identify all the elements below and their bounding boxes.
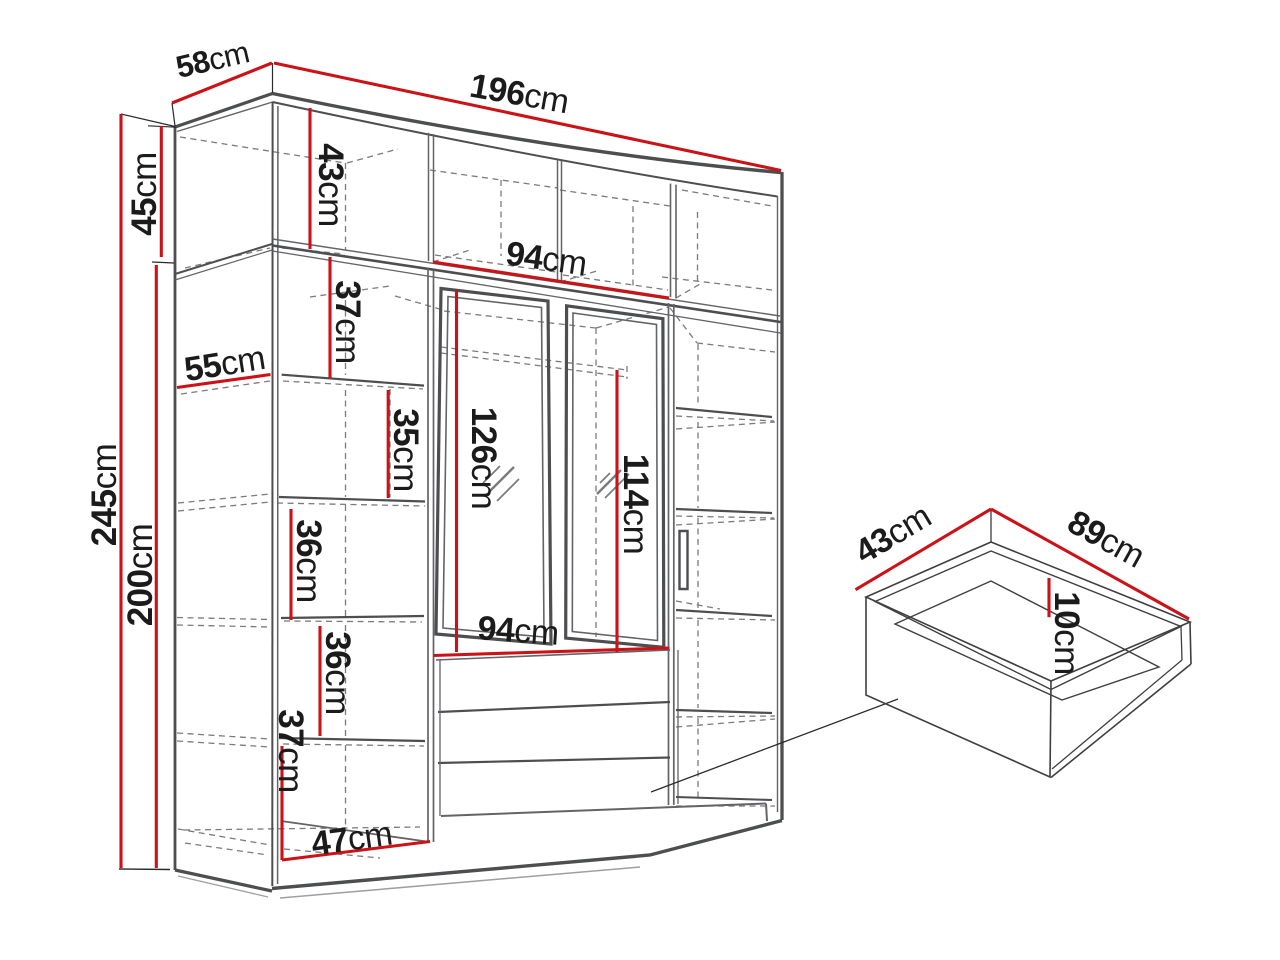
svg-text:36cm: 36cm (318, 631, 357, 715)
svg-text:36cm: 36cm (289, 519, 328, 603)
svg-text:10cm: 10cm (1047, 591, 1086, 675)
svg-text:43cm: 43cm (311, 143, 350, 227)
svg-text:200cm: 200cm (121, 524, 160, 627)
svg-text:126cm: 126cm (464, 407, 503, 510)
svg-text:37cm: 37cm (271, 709, 310, 793)
svg-text:114cm: 114cm (616, 454, 655, 555)
svg-text:245cm: 245cm (85, 444, 124, 547)
svg-text:35cm: 35cm (386, 408, 425, 492)
svg-text:45cm: 45cm (125, 152, 164, 236)
svg-text:37cm: 37cm (328, 280, 367, 364)
svg-text:94cm: 94cm (476, 609, 560, 653)
